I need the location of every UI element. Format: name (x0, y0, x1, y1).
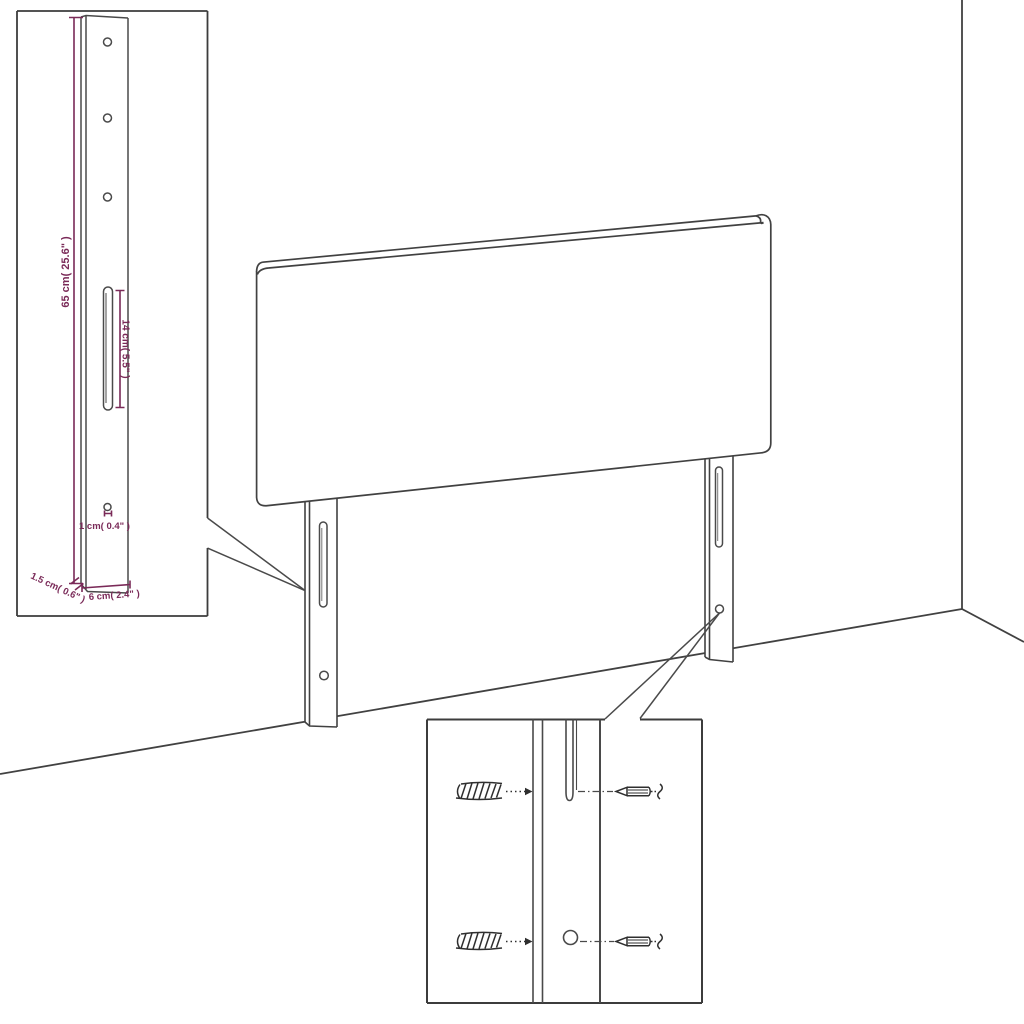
headboard-left-leg (305, 470, 337, 727)
screw-top-icon (616, 784, 662, 799)
inset-leg-bottom-hole (104, 504, 111, 511)
inset-leg-hole-1 (104, 38, 112, 46)
dim-label-slot-length: 14 cm( 5.5" ) (120, 319, 131, 378)
inset-leg-slot (104, 287, 113, 410)
leg-detail-inset: 65 cm( 25.6" ) 14 cm( 5.5" ) 1 cm( 0.4" … (17, 11, 208, 616)
dim-label-leg-height: 65 cm( 25.6" ) (60, 236, 72, 308)
anchor-arrow-bottom (525, 938, 533, 946)
inset-dimensions (69, 18, 130, 593)
diagram-page: 65 cm( 25.6" ) 14 cm( 5.5" ) 1 cm( 0.4" … (0, 0, 1024, 1024)
dim-line-1cm (105, 511, 112, 517)
right-leg-slot (716, 467, 723, 547)
floor-line-right (962, 609, 1024, 642)
hardware-detail-inset (427, 720, 702, 1004)
alignment-lines (578, 792, 614, 942)
screw-bottom-icon (616, 934, 662, 949)
wall-anchor-bottom-icon (456, 932, 525, 949)
inset2-hole (564, 931, 578, 945)
left-leg-slot (320, 522, 328, 607)
left-leg-hole (320, 671, 329, 680)
callout-wedge-left (208, 518, 306, 591)
dim-label-leg-width: 6 cm( 2.4" ) (88, 588, 140, 603)
inset-leg-hole-2 (104, 114, 112, 122)
inset2-slot (566, 720, 573, 801)
inset2-leg-strip (533, 720, 600, 1004)
inset2-box-border (427, 720, 702, 1004)
callout-wedge-right (605, 613, 720, 719)
wall-anchor-top-icon (456, 782, 525, 799)
headboard-diagram: 65 cm( 25.6" ) 14 cm( 5.5" ) 1 cm( 0.4" … (0, 0, 1024, 1024)
right-leg-hole (716, 605, 724, 613)
dim-label-hole-diameter: 1 cm( 0.4" ) (79, 521, 130, 532)
anchor-arrow-top (525, 788, 533, 796)
floor-line-left (0, 609, 962, 774)
headboard-panel (257, 215, 771, 506)
inset-leg-hole-3 (104, 193, 112, 201)
inset-leg-drawing (81, 16, 128, 594)
